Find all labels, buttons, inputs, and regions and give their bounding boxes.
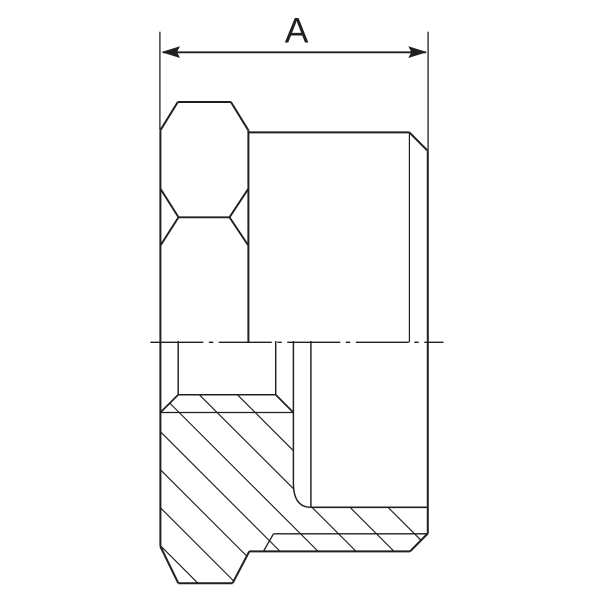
svg-text:A: A (285, 10, 309, 50)
